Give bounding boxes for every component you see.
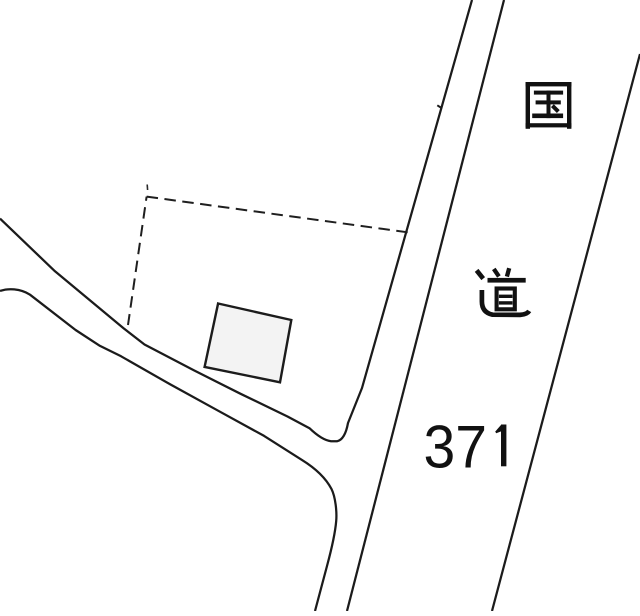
svg-text:37: 37: [424, 412, 488, 480]
